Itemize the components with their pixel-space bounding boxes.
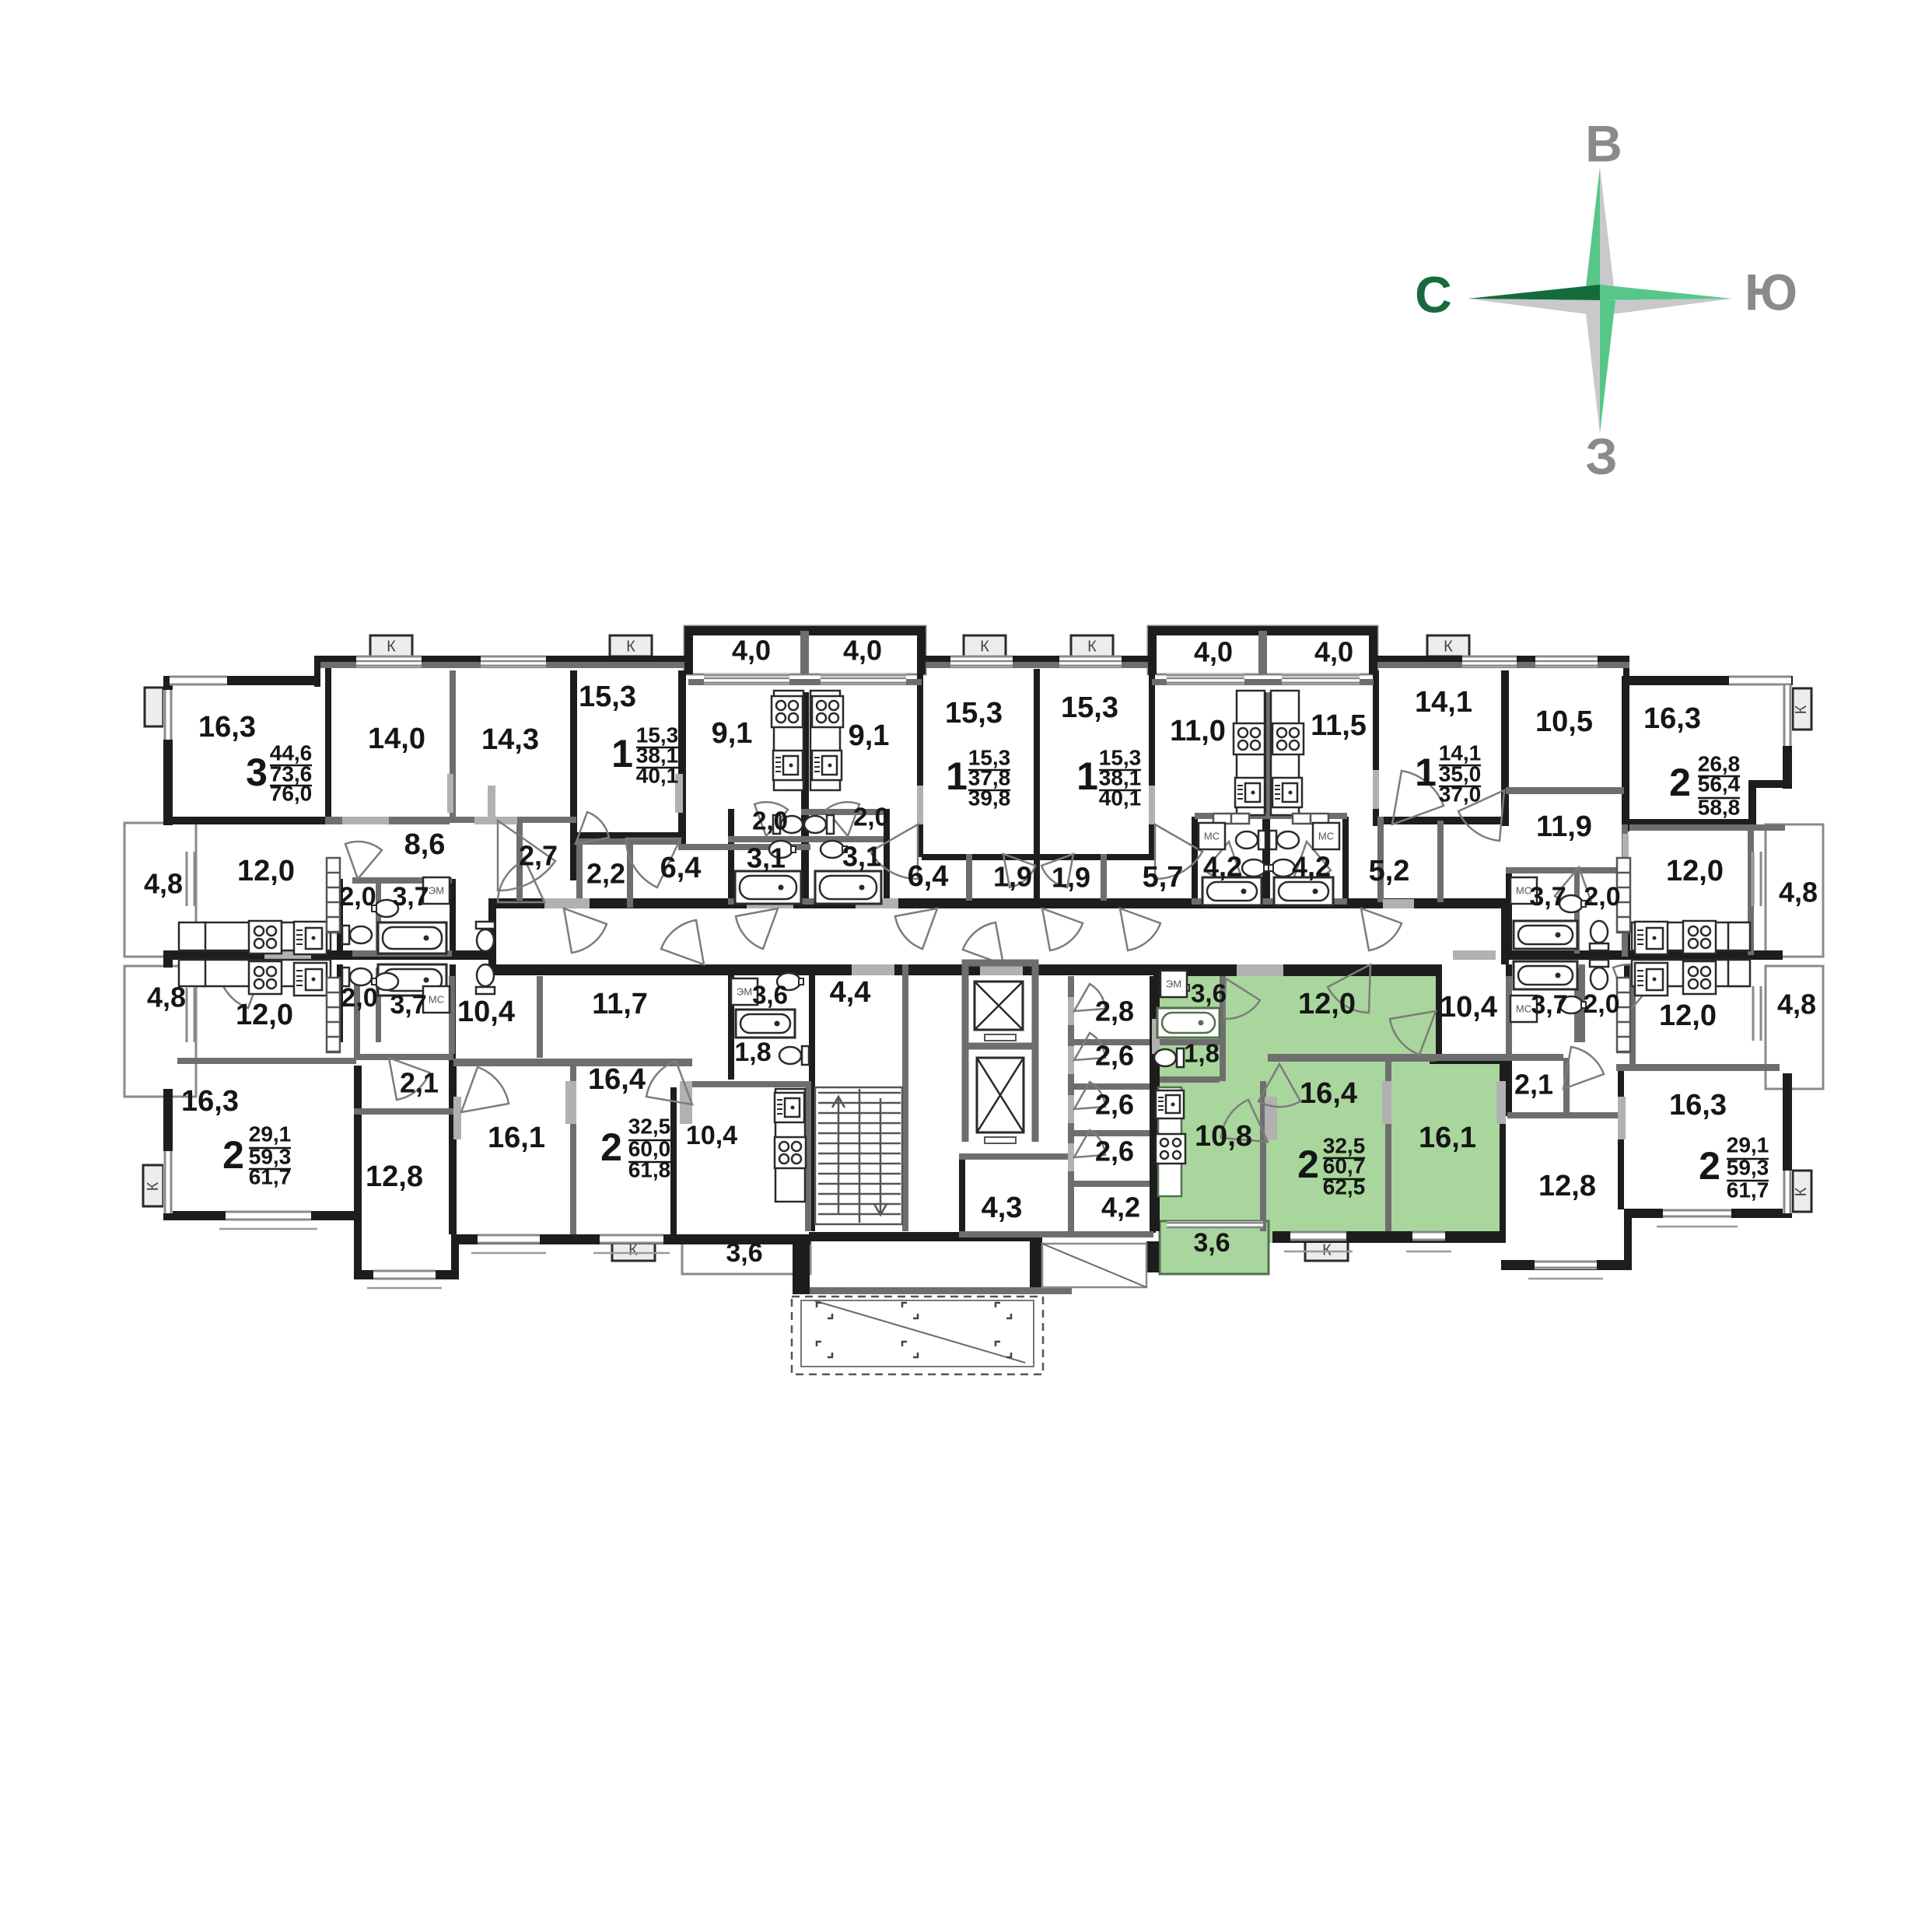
svg-text:1: 1: [1076, 754, 1098, 798]
svg-text:29,1: 29,1: [249, 1122, 292, 1146]
svg-text:В: В: [1585, 114, 1622, 172]
svg-text:1,8: 1,8: [734, 1038, 771, 1067]
svg-text:1: 1: [946, 754, 968, 798]
svg-text:2,2: 2,2: [586, 858, 625, 890]
svg-text:МС: МС: [1516, 1003, 1531, 1014]
svg-text:16,1: 16,1: [1419, 1122, 1476, 1154]
svg-text:4,2: 4,2: [1203, 851, 1242, 883]
svg-text:1: 1: [1415, 751, 1437, 794]
svg-text:С: С: [1415, 265, 1452, 323]
svg-text:4,8: 4,8: [1777, 989, 1816, 1020]
svg-text:12,8: 12,8: [1538, 1170, 1596, 1202]
svg-text:16,3: 16,3: [181, 1085, 239, 1118]
svg-text:2,6: 2,6: [1095, 1040, 1134, 1072]
svg-text:2,6: 2,6: [1095, 1136, 1134, 1167]
svg-text:К: К: [1793, 705, 1810, 714]
svg-text:4,8: 4,8: [1779, 877, 1818, 908]
svg-text:2,8: 2,8: [1095, 996, 1134, 1027]
svg-text:МС: МС: [1204, 830, 1220, 842]
svg-text:ЭМ: ЭМ: [429, 884, 444, 896]
svg-text:К: К: [1444, 638, 1453, 655]
svg-text:ЭМ: ЭМ: [1166, 978, 1181, 989]
svg-text:3: 3: [246, 751, 268, 794]
svg-text:К: К: [1087, 638, 1097, 655]
svg-text:3,6: 3,6: [1193, 1228, 1230, 1258]
svg-text:2,1: 2,1: [400, 1067, 439, 1099]
svg-text:2: 2: [600, 1125, 622, 1169]
svg-text:14,1: 14,1: [1415, 686, 1472, 719]
svg-text:Ю: Ю: [1745, 263, 1797, 320]
svg-text:К: К: [145, 1181, 162, 1191]
svg-text:12,0: 12,0: [1298, 988, 1356, 1020]
svg-text:1,8: 1,8: [1184, 1039, 1220, 1068]
svg-text:9,1: 9,1: [849, 719, 890, 752]
svg-text:МС: МС: [1318, 830, 1334, 842]
svg-text:2,6: 2,6: [1095, 1089, 1134, 1121]
svg-text:16,4: 16,4: [588, 1063, 646, 1096]
svg-text:2,0: 2,0: [1584, 882, 1620, 912]
svg-text:16,1: 16,1: [488, 1122, 545, 1154]
svg-text:12,8: 12,8: [366, 1160, 423, 1193]
svg-text:16,4: 16,4: [1300, 1077, 1357, 1110]
svg-text:2: 2: [1297, 1143, 1319, 1186]
svg-text:2,0: 2,0: [1583, 989, 1619, 1019]
svg-text:3,1: 3,1: [747, 842, 786, 874]
svg-text:3,6: 3,6: [1191, 979, 1227, 1008]
svg-text:9,1: 9,1: [712, 717, 753, 750]
svg-text:29,1: 29,1: [1727, 1132, 1769, 1157]
svg-text:15,3: 15,3: [579, 681, 636, 713]
svg-text:4,2: 4,2: [1101, 1192, 1140, 1223]
svg-text:2: 2: [222, 1133, 244, 1177]
svg-text:5,7: 5,7: [1143, 861, 1184, 894]
svg-text:1,9: 1,9: [993, 861, 1032, 893]
svg-text:4,2: 4,2: [1292, 851, 1331, 883]
svg-text:11,9: 11,9: [1536, 810, 1592, 843]
svg-text:3,6: 3,6: [752, 981, 788, 1010]
svg-text:3,7: 3,7: [390, 990, 426, 1020]
svg-text:11,7: 11,7: [592, 988, 648, 1020]
svg-text:12,0: 12,0: [1666, 855, 1724, 887]
svg-text:15,3: 15,3: [945, 697, 1003, 730]
svg-text:К: К: [626, 638, 635, 655]
svg-text:16,3: 16,3: [1643, 702, 1701, 735]
svg-text:ЭМ: ЭМ: [737, 985, 752, 997]
svg-text:6,4: 6,4: [660, 852, 702, 884]
svg-text:2: 2: [1669, 761, 1691, 804]
svg-text:16,3: 16,3: [1669, 1089, 1727, 1122]
svg-text:4,4: 4,4: [830, 976, 871, 1009]
svg-text:К: К: [387, 638, 396, 655]
svg-text:12,0: 12,0: [1659, 999, 1717, 1032]
svg-text:11,0: 11,0: [1170, 715, 1226, 747]
svg-text:12,0: 12,0: [236, 999, 293, 1031]
svg-text:2,0: 2,0: [853, 803, 889, 831]
svg-text:4,0: 4,0: [1314, 636, 1353, 668]
svg-text:2,1: 2,1: [1514, 1069, 1553, 1101]
svg-text:1: 1: [611, 732, 633, 775]
svg-text:10,4: 10,4: [1440, 991, 1497, 1024]
svg-text:3,7: 3,7: [392, 882, 429, 912]
svg-text:2,0: 2,0: [752, 807, 788, 835]
svg-text:16,3: 16,3: [198, 711, 256, 744]
svg-text:10,5: 10,5: [1535, 705, 1593, 738]
svg-text:2: 2: [1699, 1144, 1720, 1188]
svg-text:З: З: [1585, 427, 1617, 485]
svg-text:11,5: 11,5: [1311, 709, 1367, 742]
svg-text:6,4: 6,4: [908, 860, 949, 893]
svg-text:2,7: 2,7: [519, 840, 558, 872]
svg-text:14,0: 14,0: [368, 723, 425, 755]
svg-text:32,5: 32,5: [628, 1114, 671, 1138]
svg-text:15,3: 15,3: [1061, 691, 1118, 724]
svg-text:4,0: 4,0: [1194, 636, 1233, 668]
svg-text:3,7: 3,7: [1531, 990, 1567, 1020]
svg-text:К: К: [980, 638, 989, 655]
svg-text:4,0: 4,0: [843, 635, 882, 667]
svg-text:3,6: 3,6: [726, 1238, 762, 1268]
svg-text:2,0: 2,0: [339, 882, 376, 912]
svg-text:5,2: 5,2: [1369, 855, 1410, 887]
svg-text:14,3: 14,3: [481, 723, 539, 756]
svg-text:2,0: 2,0: [341, 983, 377, 1013]
svg-text:4,0: 4,0: [732, 635, 771, 667]
svg-text:4,8: 4,8: [144, 868, 183, 900]
svg-text:10,4: 10,4: [457, 996, 515, 1028]
svg-text:8,6: 8,6: [404, 828, 446, 861]
svg-text:4,3: 4,3: [982, 1192, 1023, 1224]
svg-text:10,8: 10,8: [1195, 1120, 1252, 1153]
svg-text:К: К: [1793, 1187, 1810, 1196]
svg-text:3,7: 3,7: [1529, 882, 1566, 912]
svg-text:МС: МС: [429, 993, 444, 1005]
svg-text:10,4: 10,4: [686, 1121, 737, 1150]
svg-text:12,0: 12,0: [237, 855, 295, 887]
svg-text:4,8: 4,8: [147, 982, 186, 1013]
svg-text:К: К: [1322, 1241, 1332, 1258]
svg-text:1,9: 1,9: [1052, 862, 1090, 894]
svg-text:3,1: 3,1: [842, 841, 881, 873]
